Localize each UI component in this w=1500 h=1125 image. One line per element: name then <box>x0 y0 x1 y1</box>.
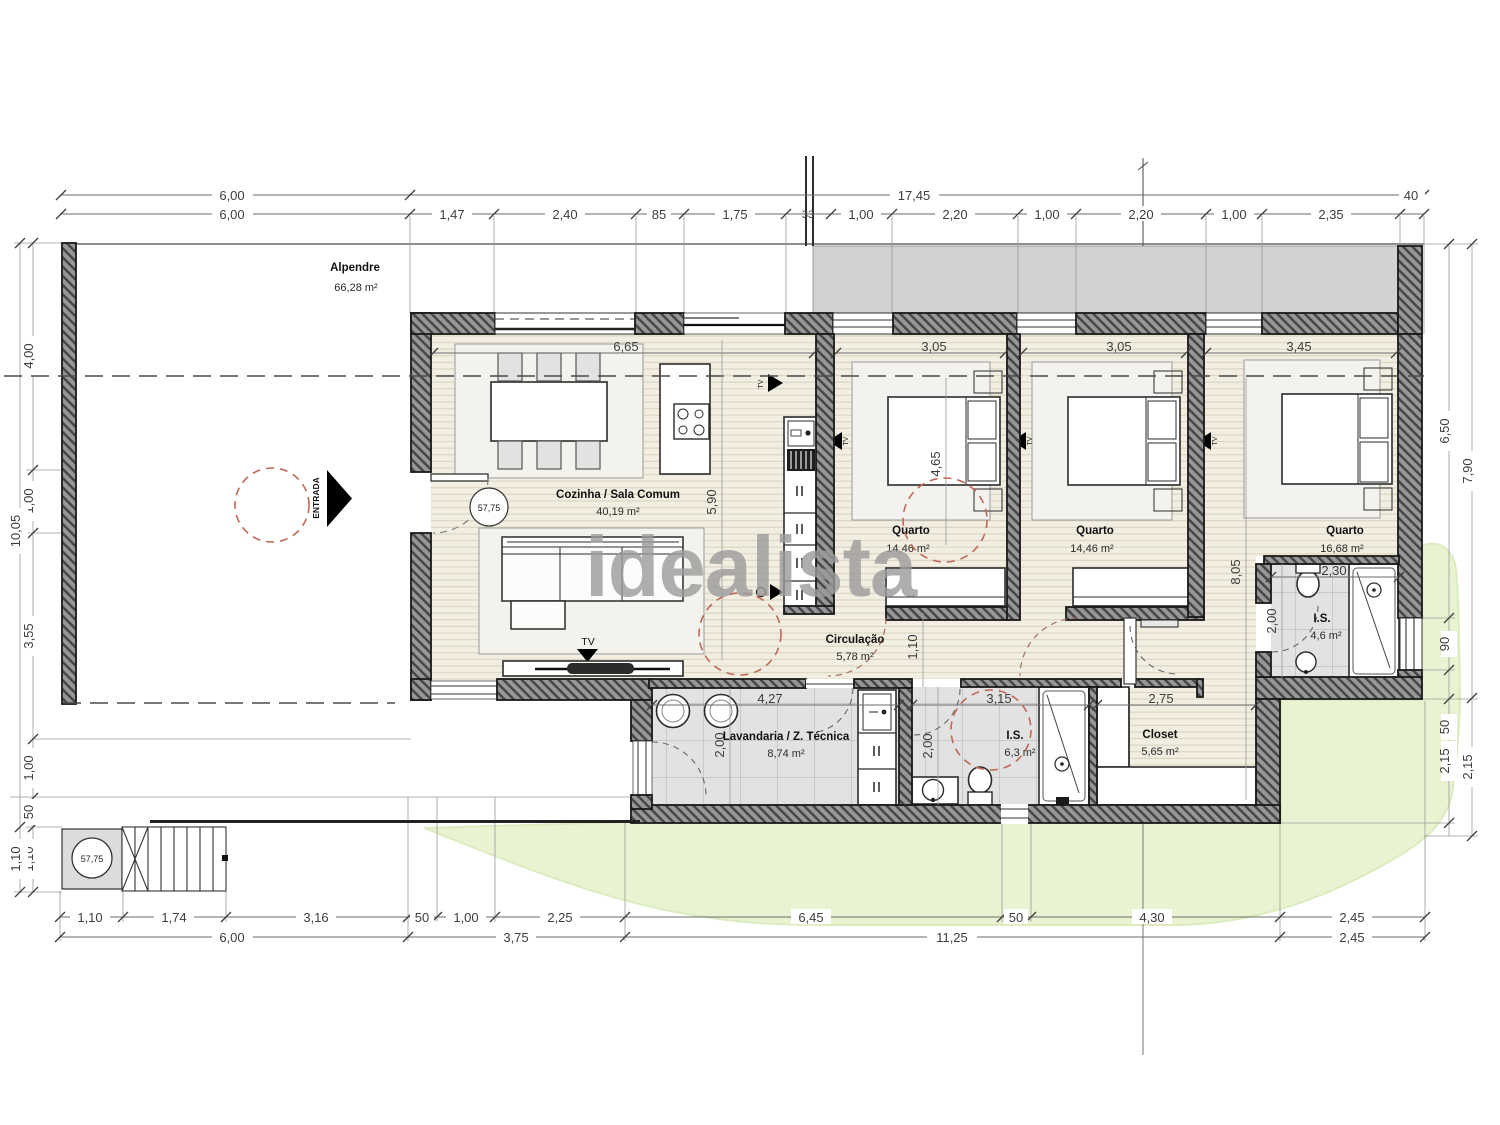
svg-text:6,00: 6,00 <box>219 188 244 203</box>
svg-text:8,05: 8,05 <box>1228 559 1243 584</box>
svg-text:4,65: 4,65 <box>928 451 943 476</box>
svg-text:2,00: 2,00 <box>1264 608 1279 633</box>
svg-text:66,28 m²: 66,28 m² <box>334 282 378 294</box>
svg-text:6,45: 6,45 <box>798 910 823 925</box>
svg-text:50: 50 <box>1009 910 1023 925</box>
svg-text:2,00: 2,00 <box>920 733 935 758</box>
svg-text:50: 50 <box>21 805 36 819</box>
svg-text:Circulação: Circulação <box>826 634 885 646</box>
svg-text:TV: TV <box>581 636 594 648</box>
svg-text:2,15: 2,15 <box>1437 748 1452 773</box>
svg-text:Quarto: Quarto <box>1326 525 1364 537</box>
svg-text:3,16: 3,16 <box>303 910 328 925</box>
svg-text:5,65 m²: 5,65 m² <box>1141 746 1179 758</box>
svg-text:2,40: 2,40 <box>552 207 577 222</box>
svg-text:Alpendre: Alpendre <box>330 262 380 274</box>
svg-text:1,00: 1,00 <box>848 207 873 222</box>
svg-text:I.S.: I.S. <box>1006 730 1023 742</box>
svg-text:50: 50 <box>1437 720 1452 734</box>
svg-text:TV: TV <box>843 436 850 445</box>
svg-text:3,15: 3,15 <box>986 691 1011 706</box>
svg-text:4,27: 4,27 <box>757 691 782 706</box>
svg-text:1,00: 1,00 <box>1034 207 1059 222</box>
svg-text:6,00: 6,00 <box>219 207 244 222</box>
svg-text:6,50: 6,50 <box>1437 418 1452 443</box>
svg-text:2,25: 2,25 <box>547 910 572 925</box>
svg-text:1,00: 1,00 <box>1221 207 1246 222</box>
svg-text:3,75: 3,75 <box>503 930 528 945</box>
svg-text:2,20: 2,20 <box>1128 207 1153 222</box>
svg-text:6,65: 6,65 <box>613 339 638 354</box>
svg-text:8,74 m²: 8,74 m² <box>767 748 805 760</box>
svg-text:11,25: 11,25 <box>936 930 968 945</box>
svg-text:2,20: 2,20 <box>942 207 967 222</box>
svg-text:57,75: 57,75 <box>81 854 104 864</box>
svg-text:16,68 m²: 16,68 m² <box>1320 543 1364 555</box>
svg-text:TV: TV <box>1027 436 1034 445</box>
svg-text:1,47: 1,47 <box>439 207 464 222</box>
svg-text:33: 33 <box>802 209 814 221</box>
svg-text:3,55: 3,55 <box>21 623 36 648</box>
svg-text:2,45: 2,45 <box>1339 910 1364 925</box>
svg-text:1,10: 1,10 <box>905 634 920 659</box>
svg-text:4,6 m²: 4,6 m² <box>1310 630 1342 642</box>
svg-text:3,05: 3,05 <box>921 339 946 354</box>
svg-text:TV: TV <box>1212 436 1219 445</box>
svg-text:3,05: 3,05 <box>1106 339 1131 354</box>
svg-text:1,10: 1,10 <box>77 910 102 925</box>
svg-text:2,45: 2,45 <box>1339 930 1364 945</box>
svg-text:1,74: 1,74 <box>161 910 186 925</box>
svg-text:1,10: 1,10 <box>8 846 23 871</box>
svg-text:1,00: 1,00 <box>453 910 478 925</box>
svg-text:6,00: 6,00 <box>219 930 244 945</box>
svg-text:Cozinha / Sala Comum: Cozinha / Sala Comum <box>556 489 680 501</box>
svg-text:I.S.: I.S. <box>1313 613 1330 625</box>
svg-text:90: 90 <box>1437 637 1452 651</box>
svg-text:3,45: 3,45 <box>1286 339 1311 354</box>
svg-text:85: 85 <box>652 207 666 222</box>
svg-text:2,30: 2,30 <box>1321 563 1346 578</box>
svg-text:10,05: 10,05 <box>8 515 23 548</box>
svg-text:1,75: 1,75 <box>722 207 747 222</box>
svg-text:2,75: 2,75 <box>1148 691 1173 706</box>
svg-text:50: 50 <box>415 910 429 925</box>
svg-text:7,90: 7,90 <box>1460 458 1475 483</box>
svg-text:57,75: 57,75 <box>478 503 501 513</box>
svg-text:2,35: 2,35 <box>1318 207 1343 222</box>
svg-text:Quarto: Quarto <box>1076 525 1114 537</box>
svg-text:40,19 m²: 40,19 m² <box>596 506 640 518</box>
svg-text:Lavandaria / Z. Técnica: Lavandaria / Z. Técnica <box>723 731 850 743</box>
svg-text:idealista: idealista <box>585 520 918 615</box>
svg-text:Closet: Closet <box>1142 729 1177 741</box>
svg-text:4,30: 4,30 <box>1139 910 1164 925</box>
svg-text:14,46 m²: 14,46 m² <box>1070 543 1114 555</box>
svg-text:1,00: 1,00 <box>21 755 36 780</box>
svg-text:TV: TV <box>758 379 765 388</box>
svg-text:5,78 m²: 5,78 m² <box>836 651 874 663</box>
svg-text:17,45: 17,45 <box>898 188 931 203</box>
svg-text:4,00: 4,00 <box>21 343 36 368</box>
svg-text:2,15: 2,15 <box>1460 754 1475 779</box>
svg-text:5,90: 5,90 <box>704 489 719 514</box>
svg-text:ENTRADA: ENTRADA <box>311 477 321 519</box>
svg-text:40: 40 <box>1404 188 1418 203</box>
